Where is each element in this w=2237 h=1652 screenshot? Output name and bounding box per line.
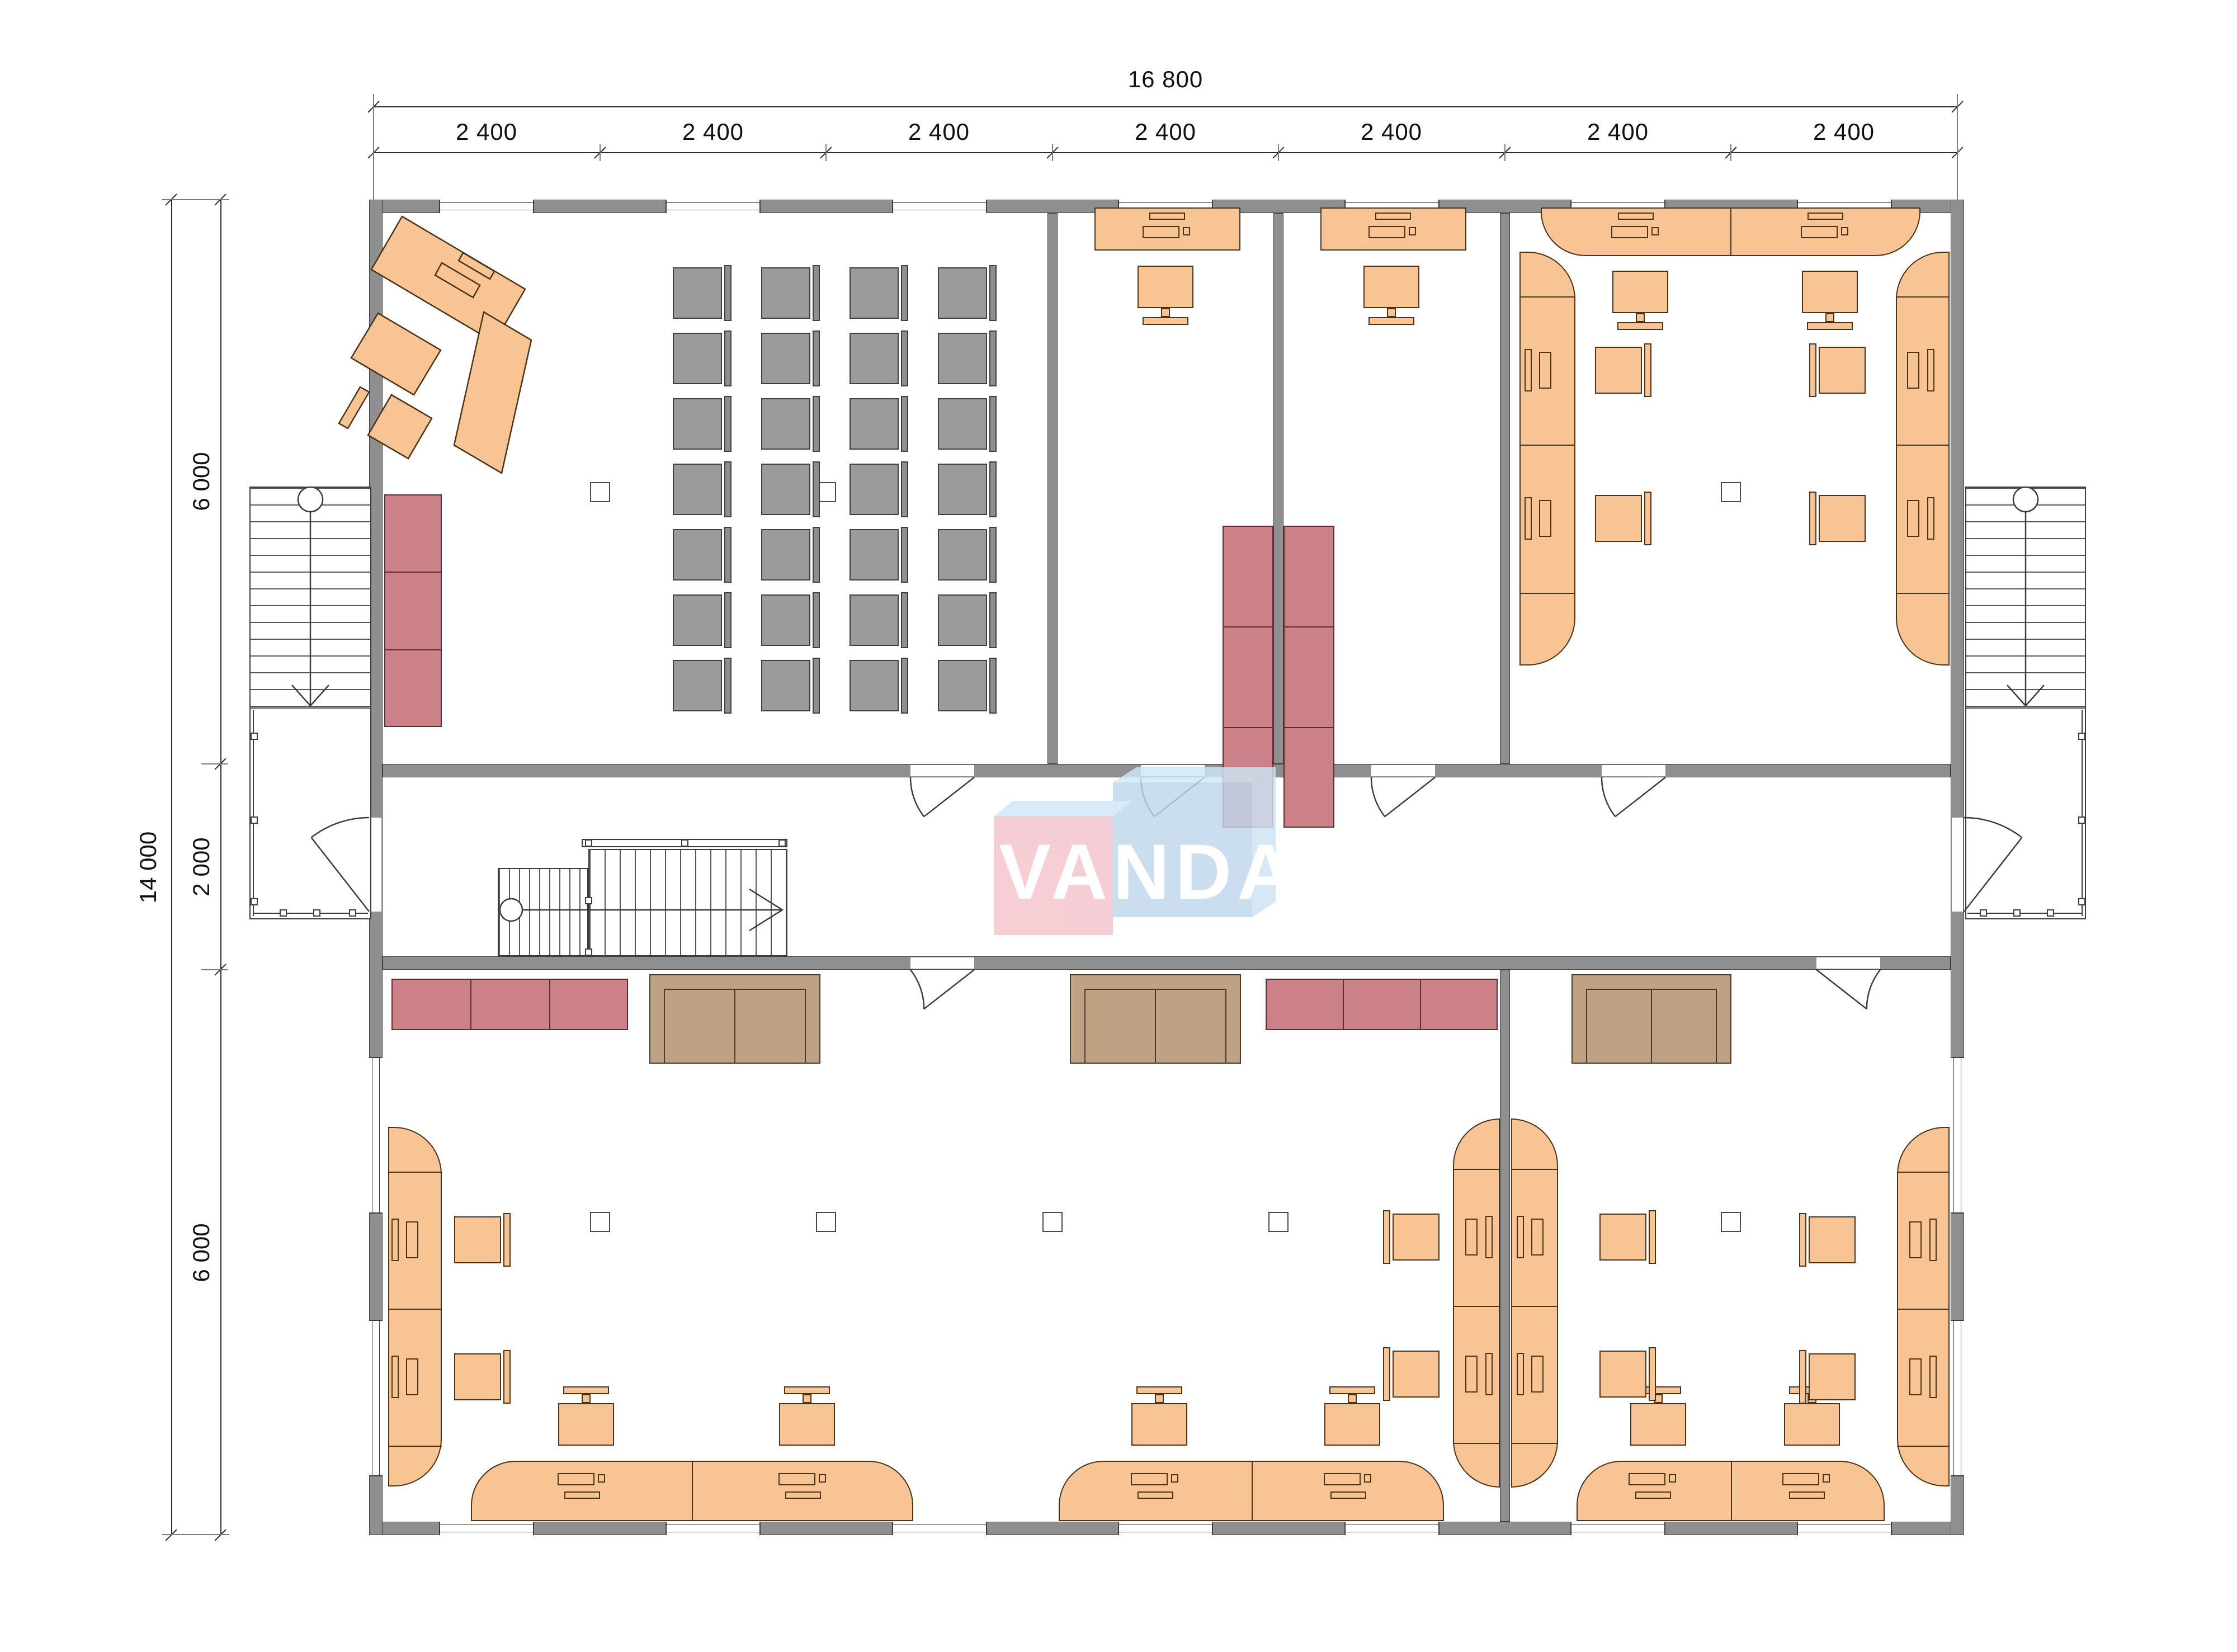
vanda-watermark: VANDA xyxy=(999,827,1256,917)
floor-plan: 16 800 2 400 2 400 2 400 2 400 2 400 2 4… xyxy=(0,0,2237,1652)
plan-linework xyxy=(0,0,2237,1652)
angled-desk xyxy=(339,216,531,473)
